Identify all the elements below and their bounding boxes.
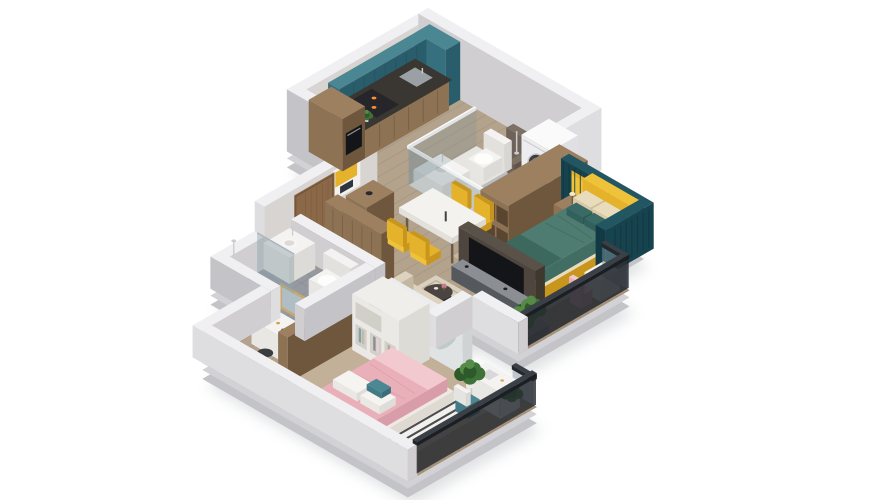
floorplan-3d-render	[0, 0, 888, 500]
floorplan-screenshot	[0, 0, 888, 500]
apartment	[64, 8, 770, 500]
